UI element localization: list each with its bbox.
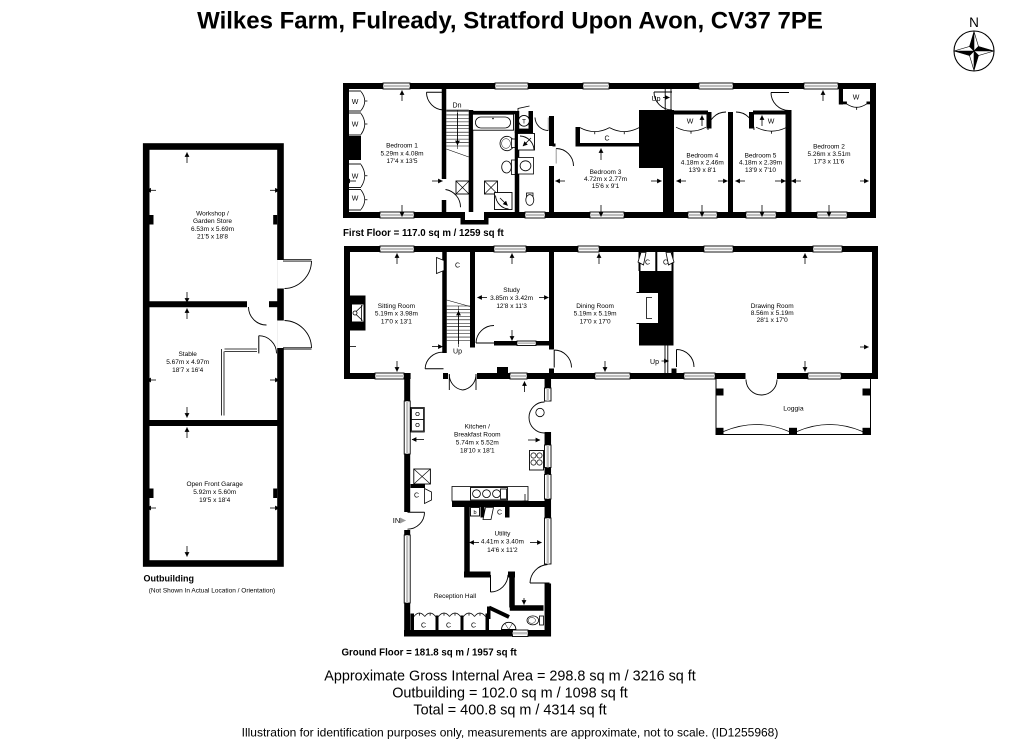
svg-text:Outbuilding = 102.0 sq m / 109: Outbuilding = 102.0 sq m / 1098 sq ft	[392, 686, 628, 702]
svg-text:6.53m x 5.69m: 6.53m x 5.69m	[191, 226, 234, 233]
svg-text:C: C	[414, 493, 419, 500]
svg-text:18'10 x 18'1: 18'10 x 18'1	[460, 448, 495, 455]
svg-text:T: T	[522, 119, 526, 126]
svg-text:17'3 x 11'6: 17'3 x 11'6	[814, 159, 845, 166]
svg-text:5.29m x 4.08m: 5.29m x 4.08m	[381, 150, 424, 157]
svg-text:Reception Hall: Reception Hall	[434, 593, 477, 600]
svg-text:5.26m x 3.51m: 5.26m x 3.51m	[808, 151, 851, 158]
svg-text:Breakfast Room: Breakfast Room	[454, 432, 501, 439]
svg-text:Dining Room: Dining Room	[576, 303, 614, 310]
svg-text:21'5 x 18'8: 21'5 x 18'8	[197, 234, 228, 241]
svg-text:(Not Shown In Actual Location: (Not Shown In Actual Location / Orientat…	[149, 587, 275, 594]
svg-text:W: W	[352, 174, 359, 181]
svg-text:4.72m x 2.77m: 4.72m x 2.77m	[584, 176, 627, 183]
svg-text:IN: IN	[393, 516, 401, 525]
svg-text:Bedroom 5: Bedroom 5	[745, 152, 777, 159]
svg-text:Bedroom 3: Bedroom 3	[590, 169, 622, 176]
svg-text:Loggia: Loggia	[783, 406, 804, 413]
svg-text:W: W	[768, 119, 775, 126]
svg-text:19'5 x 18'4: 19'5 x 18'4	[199, 497, 230, 504]
svg-text:Bedroom 1: Bedroom 1	[386, 143, 418, 150]
svg-text:17'4 x 13'5: 17'4 x 13'5	[386, 158, 417, 165]
svg-text:Sitting Room: Sitting Room	[378, 303, 415, 310]
svg-text:Utility: Utility	[494, 530, 511, 537]
svg-text:W: W	[687, 119, 694, 126]
svg-text:Bedroom 4: Bedroom 4	[686, 152, 718, 159]
svg-text:3.85m x 3.42m: 3.85m x 3.42m	[490, 295, 533, 302]
svg-text:12'8 x 11'3: 12'8 x 11'3	[496, 303, 527, 310]
svg-text:C: C	[645, 260, 650, 267]
svg-text:C: C	[446, 623, 451, 630]
svg-text:First Floor = 117.0 sq m / 125: First Floor = 117.0 sq m / 1259 sq ft	[343, 228, 504, 239]
svg-text:5.19m x 3.98m: 5.19m x 3.98m	[375, 311, 418, 318]
svg-text:Total = 400.8 sq m / 4314 sq f: Total = 400.8 sq m / 4314 sq ft	[413, 703, 606, 719]
svg-text:Workshop /: Workshop /	[196, 210, 229, 217]
svg-text:8.56m x 5.19m: 8.56m x 5.19m	[751, 310, 794, 317]
svg-text:13'9 x 8'1: 13'9 x 8'1	[689, 167, 717, 174]
svg-text:Bedroom 2: Bedroom 2	[813, 144, 845, 151]
svg-text:b: b	[473, 510, 476, 516]
svg-text:Approximate Gross Internal Are: Approximate Gross Internal Area = 298.8 …	[324, 669, 696, 685]
svg-text:17'0 x 17'0: 17'0 x 17'0	[580, 318, 611, 325]
svg-text:Garden Store: Garden Store	[193, 218, 232, 225]
svg-text:4.18m x 2.46m: 4.18m x 2.46m	[681, 160, 724, 167]
svg-text:Dn: Dn	[453, 103, 462, 110]
svg-text:17'0 x 13'1: 17'0 x 13'1	[381, 318, 412, 325]
svg-text:Wilkes Farm, Fulready, Stratfo: Wilkes Farm, Fulready, Stratford Upon Av…	[197, 8, 823, 35]
svg-text:W: W	[853, 95, 860, 102]
svg-text:C: C	[455, 263, 460, 270]
svg-text:W: W	[352, 99, 359, 106]
svg-text:Up: Up	[453, 349, 462, 356]
svg-text:13'9 x 7'10: 13'9 x 7'10	[745, 167, 776, 174]
svg-text:Ground Floor = 181.8 sq m / 19: Ground Floor = 181.8 sq m / 1957 sq ft	[342, 647, 518, 658]
svg-text:5.74m x 5.52m: 5.74m x 5.52m	[456, 440, 499, 447]
svg-text:Open Front Garage: Open Front Garage	[187, 481, 244, 488]
svg-text:W: W	[352, 196, 359, 203]
svg-text:15'6 x 9'1: 15'6 x 9'1	[592, 183, 620, 190]
svg-text:4.41m x 3.40m: 4.41m x 3.40m	[481, 539, 524, 546]
svg-text:Study: Study	[503, 287, 520, 294]
svg-text:C: C	[497, 510, 502, 517]
svg-text:W: W	[352, 122, 359, 129]
svg-text:Up: Up	[650, 359, 659, 366]
svg-text:18'7 x 16'4: 18'7 x 16'4	[172, 367, 203, 374]
svg-text:Illustration for identificatio: Illustration for identification purposes…	[242, 725, 779, 739]
svg-text:Kitchen /: Kitchen /	[465, 424, 490, 431]
svg-text:5.92m x 5.60m: 5.92m x 5.60m	[193, 489, 236, 496]
svg-text:C: C	[604, 136, 609, 143]
svg-text:5.19m x 5.19m: 5.19m x 5.19m	[574, 311, 617, 318]
svg-text:14'6 x 11'2: 14'6 x 11'2	[487, 547, 518, 554]
svg-text:5.67m x 4.97m: 5.67m x 4.97m	[166, 359, 209, 366]
svg-text:Drawing Room: Drawing Room	[751, 303, 794, 310]
svg-text:C: C	[471, 623, 476, 630]
svg-text:28'1 x 17'0: 28'1 x 17'0	[757, 317, 788, 324]
svg-text:Stable: Stable	[178, 351, 197, 358]
svg-text:C: C	[421, 623, 426, 630]
svg-text:4.18m x 2.39m: 4.18m x 2.39m	[739, 160, 782, 167]
svg-text:Outbuilding: Outbuilding	[144, 573, 194, 583]
svg-text:N: N	[969, 15, 979, 30]
svg-text:C: C	[663, 260, 668, 267]
